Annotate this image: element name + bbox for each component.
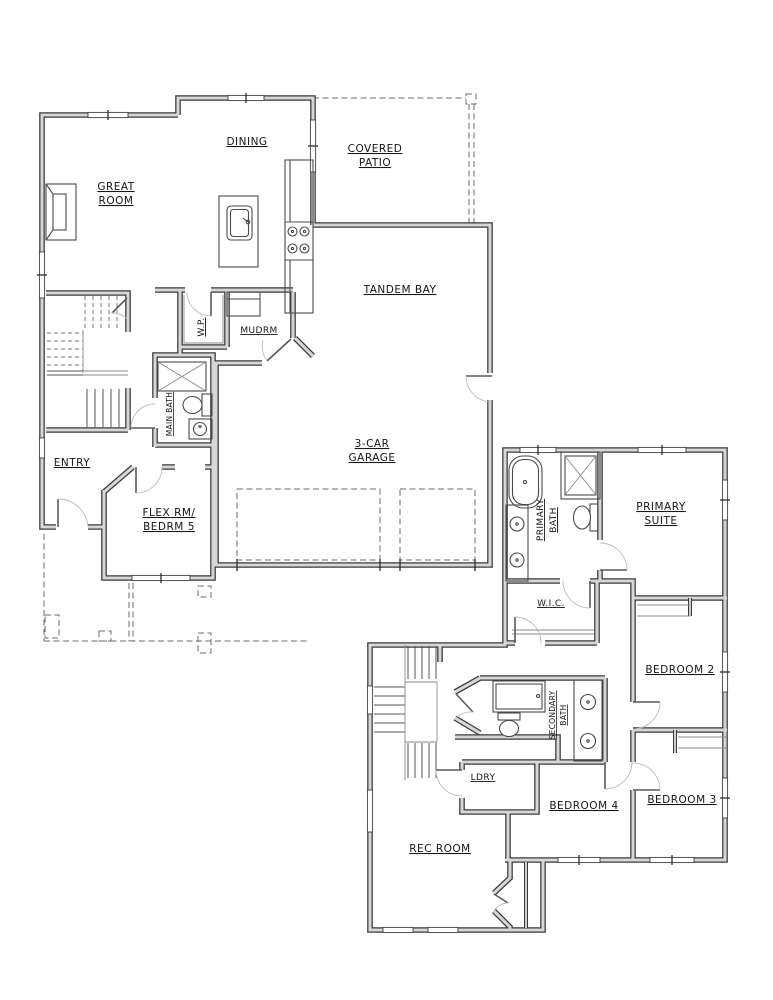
wic-shelves [512, 630, 594, 634]
room-label-bedroom3: BEDROOM 3 [647, 794, 716, 806]
room-label-wic: W.I.C. [537, 599, 565, 609]
room-label-pantry: W.P. [197, 317, 207, 336]
bedroom3-closet-shelf [678, 737, 726, 748]
mudroom-bench [227, 292, 260, 316]
room-label-garage-1: 3-CAR [355, 438, 390, 450]
fireplace [46, 184, 76, 240]
room-label-covered-patio-2: PATIO [359, 157, 391, 169]
room-label-primary-bath-1: PRIMARY [536, 499, 546, 541]
kitchen-island [219, 196, 258, 267]
first-floor-plan: DINING COVERED PATIO GREAT ROOM TANDEM B… [37, 93, 492, 653]
room-label-laundry: LDRY [471, 773, 496, 783]
second-floor-plan: PRIMARY BATH PRIMARY SUITE W.I.C. BEDROO… [367, 445, 730, 933]
room-label-primary-bath-2: BATH [549, 507, 559, 533]
stairs-first-floor [47, 296, 128, 428]
floor-plan-drawing: DINING COVERED PATIO GREAT ROOM TANDEM B… [0, 0, 773, 1000]
front-porch-outline [44, 534, 310, 653]
room-label-secondary-bath-2: BATH [559, 704, 568, 725]
room-label-secondary-bath-1: SECONDARY [548, 690, 557, 739]
room-label-great-room-1: GREAT [97, 181, 134, 193]
room-label-entry: ENTRY [54, 457, 91, 469]
room-label-rec-room: REC ROOM [409, 843, 470, 855]
room-label-tandem-bay: TANDEM BAY [363, 284, 437, 296]
room-label-flex-1: FLEX RM/ [143, 507, 196, 519]
bedroom2-closet-shelf [637, 605, 690, 616]
stairs-second-floor [374, 645, 437, 780]
room-label-main-bath: MAIN BATH [165, 392, 174, 436]
room-label-primary-suite-1: PRIMARY [636, 501, 686, 513]
room-label-dining: DINING [226, 136, 267, 148]
floor-plan-page: DINING COVERED PATIO GREAT ROOM TANDEM B… [0, 0, 773, 1000]
covered-patio-outline [313, 94, 476, 223]
garage-door-tracks [237, 489, 475, 560]
room-label-great-room-2: ROOM [99, 195, 134, 207]
room-label-covered-patio-1: COVERED [348, 143, 403, 155]
room-label-bedroom2: BEDROOM 2 [645, 664, 714, 676]
room-label-mudroom: MUDRM [240, 326, 277, 336]
room-label-bedroom4: BEDROOM 4 [549, 800, 618, 812]
room-label-primary-suite-2: SUITE [645, 515, 678, 527]
room-label-flex-2: BEDRM 5 [143, 521, 195, 533]
room-label-garage-2: GARAGE [349, 452, 396, 464]
